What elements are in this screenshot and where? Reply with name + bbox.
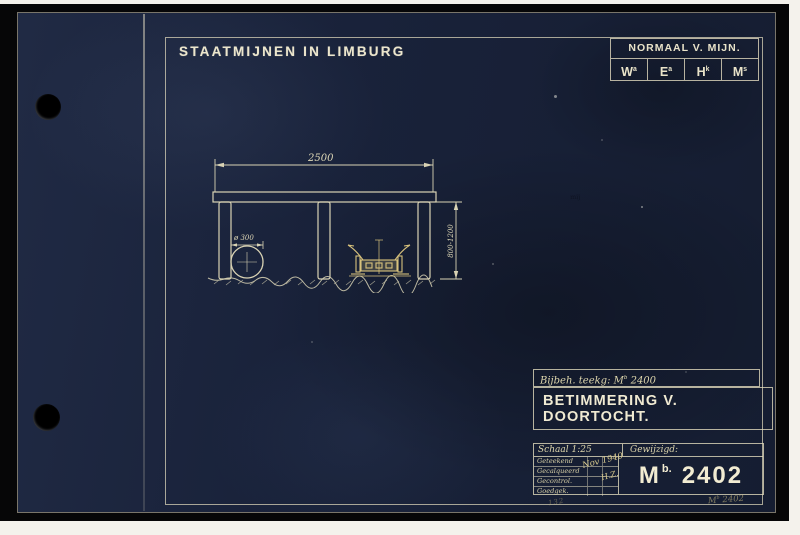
height-dimension-label: 800-1200	[447, 224, 455, 258]
width-dimension-label: 2500	[307, 153, 334, 164]
conveyor-trough	[348, 240, 411, 276]
scale-row: Schaal 1:25 Gewijzigd:	[534, 444, 763, 457]
right-post	[418, 202, 430, 279]
normaal-cell-wa: Wa	[611, 59, 647, 80]
dust-speck	[492, 263, 494, 265]
normaal-cell-ms: Ms	[721, 59, 758, 80]
dust-speck	[554, 95, 557, 98]
pencil-smudge: mij	[570, 193, 581, 201]
pipe-circle	[231, 246, 263, 278]
company-title: STAATMIJNEN IN LIMBURG	[179, 44, 405, 59]
left-post	[219, 202, 231, 279]
normaal-table-cells: Wa Ea Hk Ms	[611, 59, 758, 80]
reference-drawing-box: Bijbeh. teekg: Mb 2400	[533, 369, 760, 387]
middle-post	[318, 202, 330, 279]
normaal-table-header: NORMAAL V. MIJN.	[611, 39, 758, 59]
dust-speck	[641, 206, 643, 208]
sign-row-approved: Goedgek.	[534, 487, 618, 496]
drawing-number: Mb.2402	[619, 457, 763, 494]
changed-label: Gewijzigd:	[623, 444, 763, 456]
punch-hole-bottom	[33, 404, 60, 431]
binding-crease-line	[143, 14, 145, 511]
cross-section-drawing: 2500 ø	[200, 148, 480, 293]
drawing-title: BETIMMERING V. DOORTOCHT.	[543, 393, 772, 425]
dust-speck	[601, 139, 603, 141]
title-block-info: Schaal 1:25 Gewijzigd: Geteekend Gecalqu…	[533, 443, 764, 495]
normaal-cell-hk: Hk	[684, 59, 721, 80]
normaal-mijn-table: NORMAAL V. MIJN. Wa Ea Hk Ms	[610, 38, 759, 81]
punch-hole-top	[35, 94, 61, 120]
dust-speck	[311, 341, 313, 343]
reference-drawing-label: Bijbeh. teekg: M	[540, 375, 624, 386]
pipe-dimension-label: ø 300	[233, 234, 254, 242]
pipe-dimension	[231, 241, 263, 249]
top-beam	[213, 192, 436, 202]
drawing-title-box: BETIMMERING V. DOORTOCHT.	[533, 387, 773, 430]
blueprint-scan: STAATMIJNEN IN LIMBURG NORMAAL V. MIJN. …	[0, 0, 800, 535]
normaal-cell-ea: Ea	[647, 59, 684, 80]
